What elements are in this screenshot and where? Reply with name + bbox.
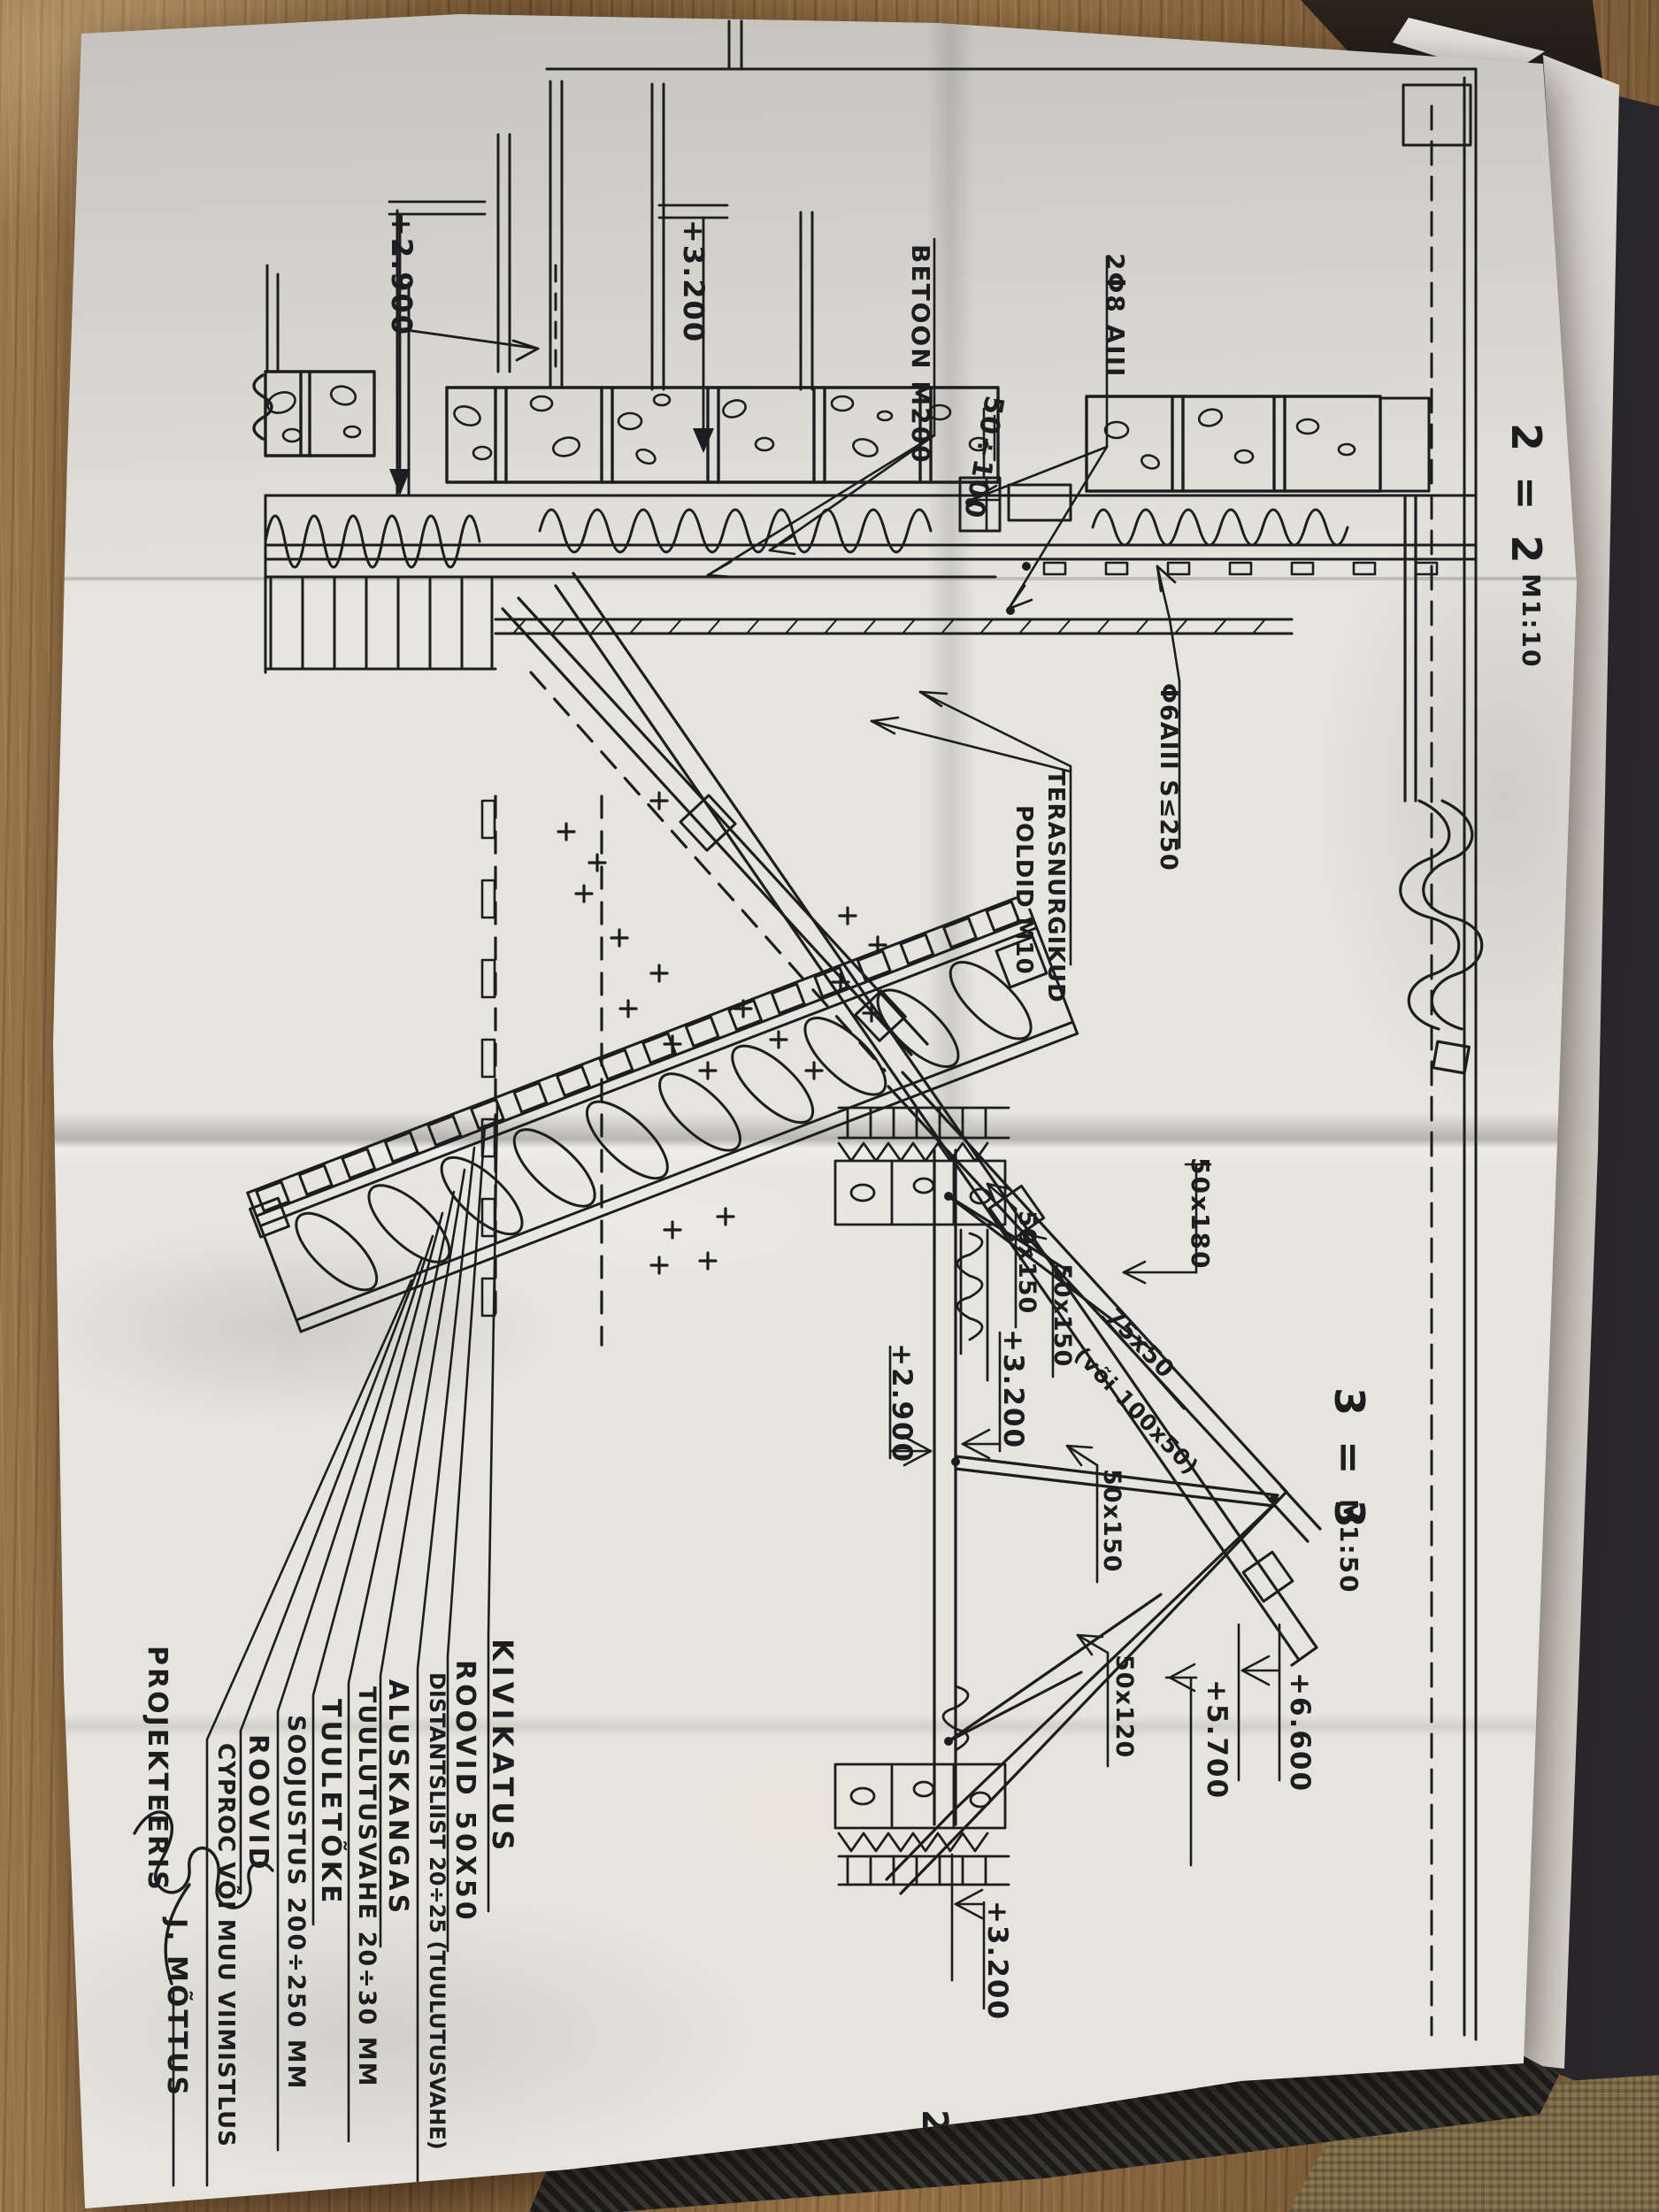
legend-row-roovid-50x50: ROOVID 50X50 xyxy=(451,1660,478,1924)
legend-row-cyproc: CYPROC VÕI MUU VIIMISTLUS xyxy=(214,1743,237,2147)
section-2-2-scale: M1:10 xyxy=(1518,573,1543,669)
note-poldid-m10: POLDID M10 xyxy=(1012,805,1035,975)
elevation-plus-3200-mid: +3.200 xyxy=(999,1329,1026,1449)
note-betoon-m200: BETOON M200 xyxy=(908,244,933,465)
note-spacing-50-100: 50÷100 xyxy=(959,394,1007,522)
legend-row-tuuletoke: TUULETÕKE xyxy=(317,1699,343,1907)
dim-50x150-b: 50x150 xyxy=(1050,1263,1074,1367)
elevation-plus-5700: +5.700 xyxy=(1202,1679,1230,1800)
legend-row-kivikatus: KIVIKATUS xyxy=(488,1639,517,1855)
drawing-labels: 2 = 2M1:10+2.900+3.200BETOON M20050÷1002… xyxy=(0,0,1659,2212)
drawing-paper-sheet: 2 = 2M1:10+2.900+3.200BETOON M20050÷1002… xyxy=(0,0,1659,2212)
elevation-plus-6600: +6.600 xyxy=(1286,1672,1313,1793)
legend-row-roovid: ROOVID xyxy=(244,1734,271,1873)
dim-50x150-a: 50x150 xyxy=(1015,1210,1039,1314)
legend-row-soojustus: SOOJUSTUS 200÷250 MM xyxy=(284,1715,308,2090)
dim-50x180: 50x180 xyxy=(1187,1157,1212,1270)
elevation-plus-2900-mid: +2.900 xyxy=(887,1343,915,1463)
paper-shadow-wrap: 2 = 2M1:10+2.900+3.200BETOON M20050÷1002… xyxy=(0,0,1659,2212)
elevation-plus-2900-top: +2.900 xyxy=(388,212,416,336)
note-rebar-2d8: 2Φ8 AIII xyxy=(1102,253,1127,378)
photo-of-construction-drawing: { "colors": { "ink": "#1d1d1f", "paper":… xyxy=(0,0,1659,2212)
dim-50x150-c: 50x150 xyxy=(1100,1469,1124,1572)
elevation-plus-3200-bottom: +3.200 xyxy=(983,1901,1010,2021)
section-cut-mark-2: 2 xyxy=(917,2109,952,2134)
elevation-plus-3200-top: +3.200 xyxy=(680,219,708,343)
section-2-2-title: 2 = 2 xyxy=(1506,423,1547,569)
dim-50x120: 50x120 xyxy=(1112,1655,1136,1758)
dim-alt-100x50: (või 100x50) xyxy=(1071,1343,1202,1479)
legend-row-aluskangas: ALUSKANGAS xyxy=(384,1679,411,1916)
note-terasnurgikud: TERASNURGIKUD xyxy=(1044,770,1067,1003)
note-rebar-d6-s250: Φ6AIII S≤250 xyxy=(1156,683,1180,872)
title-block-designer: J. MÕTTUS xyxy=(163,1918,189,2098)
section-3-3-scale: M1:50 xyxy=(1336,1499,1361,1594)
title-block-role: PROJEKTEERIS xyxy=(143,1646,170,1893)
legend-row-distantsliist: DISTANTSLIIST 20÷25 (TUULUTUSVAHE) xyxy=(426,1672,448,2150)
legend-row-tuulutusvahe: TUULUTUSVAHE 20÷30 MM xyxy=(355,1686,379,2088)
